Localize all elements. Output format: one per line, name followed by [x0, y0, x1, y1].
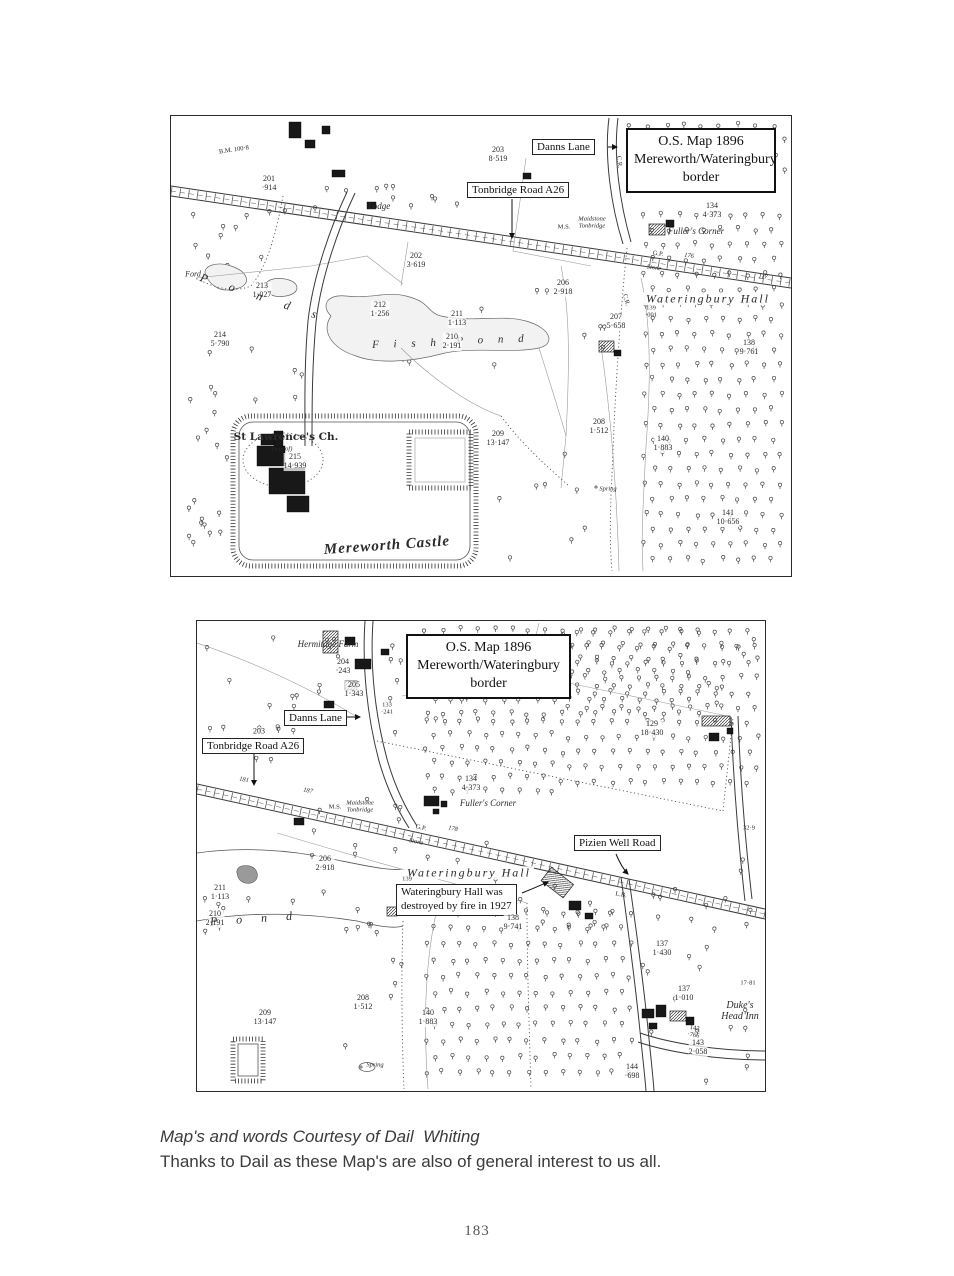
parcel-label-210: 210 2·191	[443, 333, 462, 351]
fingerpost-label: Maidstone Tonbridge	[346, 800, 373, 815]
parcel-label-137b: 137 1·010	[675, 985, 694, 1003]
hermitage-farm-label: Hermitage Farm	[298, 639, 359, 649]
road-number-142: 142 ·766	[687, 1024, 701, 1040]
parcel-label-212: 212 1·256	[371, 301, 390, 319]
parcel-label-140: 140 1·883	[419, 1009, 438, 1027]
parcel-label-139: 139	[402, 875, 412, 882]
parcel-label-208: 208 1·512	[590, 418, 609, 436]
milestone-label: M.S.	[558, 223, 571, 230]
fish-pond-label-1: F i s h	[372, 337, 442, 352]
tonbridge-road-label: Tonbridge Road A26	[202, 738, 304, 754]
os-map-1896-bottom: O.S. Map 1896 Mereworth/Wateringbury bor…	[196, 620, 766, 1092]
parcel-label-202: 202 3·619	[407, 252, 426, 270]
os-map-1896-top: O.S. Map 1896 Mereworth/Wateringbury bor…	[170, 115, 792, 577]
benchmark-329: 32·9	[743, 824, 755, 831]
fish-pond-label-2: P o n d	[456, 333, 530, 348]
parcel-label-201: 201 ·914	[262, 175, 277, 193]
parcel-label-208: 208 1·512	[354, 994, 373, 1012]
parcel-label-206: 206 2·918	[554, 279, 573, 297]
map-title-box: O.S. Map 1896 Mereworth/Wateringbury bor…	[626, 128, 776, 193]
caption-credit: Map's and words Courtesy of Dail Whiting	[160, 1127, 480, 1147]
ford-label: Ford	[185, 271, 201, 280]
road-number-181: 181	[239, 776, 250, 785]
fire-note-label: Wateringbury Hall was destroyed by fire …	[396, 884, 517, 916]
parcel-label-143: 143 2·058	[689, 1039, 708, 1057]
number-1781: 17·81	[740, 979, 755, 986]
document-page: { "page_number": "183", "caption": { "li…	[0, 0, 954, 1276]
parcel-label-205: 205 1·343	[345, 681, 364, 699]
fingerpost-label: Maidstone Tonbridge	[578, 216, 605, 231]
pizien-well-road-label: Pizien Well Road	[574, 835, 661, 851]
caption-thanks: Thanks to Dail as these Map's are also o…	[160, 1152, 661, 1172]
spring-label: Spring	[366, 1061, 383, 1068]
parcel-label-134: 134 4·373	[462, 775, 481, 793]
parcel-label-129: 129 18·430	[641, 720, 664, 738]
parcel-label-214: 214 5·790	[211, 331, 230, 349]
parcel-label-138: 138 9·761	[740, 339, 759, 357]
parcel-label-138: 138 9·741	[504, 914, 523, 932]
fullers-corner-label: Fuller's Corner	[668, 226, 724, 236]
dukes-head-inn-label: Duke's Head Inn	[721, 1000, 759, 1022]
parcel-label-207: 207 5·658	[607, 313, 626, 331]
parcel-label-134: 134 4·373	[703, 202, 722, 220]
road-number-117: 117	[758, 273, 768, 281]
road-number-176: 176	[684, 252, 695, 261]
parcel-label-137a: 137 1·430	[653, 940, 672, 958]
tonbridge-road-label: Tonbridge Road A26	[467, 182, 569, 198]
parcel-label-139: 139 ·001	[645, 305, 657, 320]
wateringbury-hall-label: Wateringbury Hall	[404, 866, 534, 879]
lodge-label: Lodge	[368, 201, 391, 211]
st-lawrence-church-label: St Lawrence's Ch.	[234, 432, 339, 444]
map-title-box: O.S. Map 1896 Mereworth/Wateringbury bor…	[406, 634, 571, 699]
danns-lane-label: Danns Lane	[532, 139, 595, 155]
parcel-label-133: 133 ·241	[381, 702, 393, 717]
parcel-label-203: 203	[253, 728, 265, 737]
parcel-label-209: 209 13·147	[487, 430, 510, 448]
road-number-187: 187	[303, 787, 314, 796]
parcel-label-203: 203 8·519	[489, 146, 508, 164]
parcel-label-144: 144 ·698	[625, 1063, 640, 1081]
parcel-label-204: 204 ·243	[336, 658, 351, 676]
danns-lane-label: Danns Lane	[284, 710, 347, 726]
page-number: 183	[0, 1223, 954, 1240]
cr-boundary-label-1: C.R.	[615, 156, 624, 169]
milestone-label: M.S.	[329, 803, 342, 810]
parcel-label-209: 209 13·147	[254, 1009, 277, 1027]
parcel-label-206: 206 2·918	[316, 855, 335, 873]
spring-label: Spring	[599, 485, 616, 492]
parcel-label-211: 211 1·113	[448, 310, 466, 328]
parcel-label-140: 140 1·883	[654, 435, 673, 453]
wateringbury-hall-label: Wateringbury Hall	[643, 292, 773, 305]
parcel-label-211: 211 1·113	[211, 884, 229, 902]
parcel-label-215: 215 14·939	[284, 453, 307, 471]
fullers-corner-label: Fuller's Corner	[460, 798, 516, 808]
guide-post-label: G.P.	[652, 250, 664, 259]
parcel-label-141: 141 10·656	[717, 509, 740, 527]
